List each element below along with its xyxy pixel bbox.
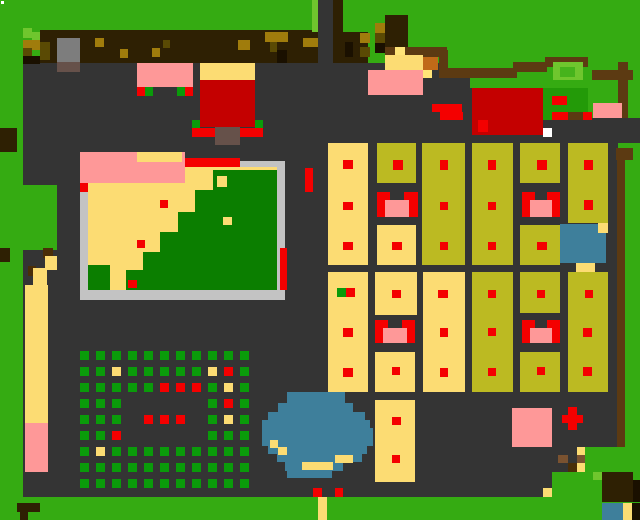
gate-top [383, 320, 388, 328]
crop-dot [176, 383, 185, 392]
crop-dot [240, 415, 249, 424]
crop-dot [192, 447, 201, 456]
crop-dot [240, 383, 249, 392]
door-marker [440, 328, 448, 337]
red-mark [432, 104, 462, 112]
gate-top [547, 192, 552, 200]
crop-dot [240, 399, 249, 408]
door-marker [537, 160, 547, 170]
crop-dot [160, 367, 169, 376]
crop-dot [128, 463, 137, 472]
crop-dot [96, 383, 105, 392]
door-marker [343, 328, 353, 337]
tree-top [385, 15, 408, 48]
bush-marker [145, 87, 153, 96]
cursor-pixel [1, 1, 4, 4]
crop-dot [224, 351, 233, 360]
crop-dot [224, 431, 233, 440]
gate-top [547, 320, 552, 328]
crop-dot [224, 399, 233, 408]
gate-pillar [522, 192, 530, 217]
tree-bottom-left [20, 510, 28, 520]
grass-tuft [23, 28, 32, 38]
dirt-path [568, 463, 577, 472]
crop-dot [96, 479, 105, 488]
park-field [178, 212, 195, 290]
crop-dot [112, 383, 121, 392]
door-marker [392, 290, 401, 298]
crop-dot [192, 479, 201, 488]
dirt-path [577, 455, 585, 463]
door-marker [393, 160, 403, 170]
door-marker [392, 242, 402, 250]
gate-top [404, 192, 409, 200]
red-mark [552, 96, 567, 105]
crop-dot [224, 367, 233, 376]
crop-dot [112, 351, 121, 360]
door-marker [440, 368, 448, 377]
grass-tuft [593, 472, 602, 480]
pond-big [268, 412, 365, 420]
park-field [88, 265, 110, 290]
crop-dot [208, 399, 217, 408]
crop-dot [144, 463, 153, 472]
crop-dot [144, 367, 153, 376]
fence-knot [238, 40, 250, 50]
pond-sand [576, 263, 595, 272]
sand-patch-top [385, 55, 423, 71]
gate-pillar [377, 192, 385, 217]
park-border-red [280, 248, 287, 290]
door-marker [488, 160, 496, 170]
crop-dot [208, 463, 217, 472]
crop-dot [96, 399, 105, 408]
crop-dot [144, 479, 153, 488]
crop-dot [240, 351, 249, 360]
fence-right [617, 160, 625, 447]
crop-dot [224, 383, 233, 392]
door-marker [343, 202, 353, 210]
grass-bottom-right [585, 447, 618, 472]
gate-pink [530, 328, 552, 343]
corner-dirt [23, 48, 32, 56]
crop-dot [160, 479, 169, 488]
corner-dirt [40, 42, 50, 60]
park-corner-red [80, 183, 88, 192]
door-marker [343, 242, 353, 250]
door-marker [392, 455, 400, 463]
crop-dot [80, 463, 89, 472]
door-marker [583, 328, 592, 337]
door-marker [137, 87, 145, 96]
crop-dot [160, 351, 169, 360]
door-marker [537, 290, 545, 298]
pond-big [262, 420, 370, 428]
park-field [143, 252, 160, 290]
crop-dot [112, 479, 121, 488]
tree-detail [360, 33, 370, 43]
park-border [80, 290, 285, 300]
crop-dot [80, 479, 89, 488]
crop-dot [192, 351, 201, 360]
door-marker [438, 290, 448, 298]
pink-patch [593, 103, 622, 118]
crop-dot [176, 351, 185, 360]
gate-pink [530, 200, 552, 217]
door-marker [584, 200, 593, 210]
pink-roof-small [368, 70, 423, 95]
crop-dot [208, 351, 217, 360]
crop-dot [112, 367, 121, 376]
sand-road [25, 300, 48, 423]
pond-sand [302, 462, 333, 470]
crop-dot [80, 399, 89, 408]
bush-marker [255, 120, 263, 128]
item-marker [128, 280, 137, 288]
crop-dot [112, 415, 121, 424]
crop-dot [80, 367, 89, 376]
crop-dot [80, 447, 89, 456]
red-mark [552, 112, 568, 120]
pond-big [278, 403, 353, 412]
sand-dot [543, 488, 552, 497]
tree-shadow [633, 480, 640, 502]
sand-patch [223, 217, 232, 225]
fence-knot [95, 38, 104, 47]
tree-left-edge [0, 128, 17, 152]
crop-dot [80, 383, 89, 392]
crop-dot [224, 447, 233, 456]
crop-dot [128, 479, 137, 488]
stone-base [57, 62, 80, 72]
grass-bulge-left [23, 185, 57, 250]
dirt-mark [568, 112, 583, 120]
crop-dot [176, 447, 185, 456]
door-marker [488, 368, 496, 376]
fence-knot [303, 38, 318, 47]
crop-dot [192, 463, 201, 472]
sand-path [577, 447, 585, 455]
crop-dot [96, 367, 105, 376]
gate-pink [385, 200, 409, 217]
gate-pillar [552, 192, 560, 217]
gate-pillar [552, 320, 560, 343]
crop-dot [144, 383, 153, 392]
crop-dot [96, 431, 105, 440]
crop-dot [160, 463, 169, 472]
crop-dot [112, 431, 121, 440]
gate-pillar [409, 192, 418, 217]
door-marker [488, 202, 496, 210]
crop-dot [240, 367, 249, 376]
crop-dot [208, 447, 217, 456]
fence-knot [345, 42, 353, 57]
tree-bottom-right [602, 472, 633, 502]
pond-sand [270, 440, 278, 448]
crop-dot [176, 463, 185, 472]
door-marker [584, 160, 593, 170]
fence-gate [616, 148, 633, 160]
crop-dot [144, 415, 153, 424]
door-marker [585, 290, 593, 298]
crop-dot [224, 479, 233, 488]
crate [423, 57, 438, 70]
fence-knot [265, 32, 288, 42]
park-roof-tan [137, 152, 182, 162]
stone-statue [57, 38, 80, 62]
park-field [213, 170, 277, 290]
pond-big [262, 428, 373, 446]
bush-inner [560, 67, 575, 77]
gate-top [530, 192, 535, 200]
pond-corner [602, 503, 623, 520]
fence-knot [120, 49, 128, 58]
crop-dot [96, 415, 105, 424]
door-marker [343, 368, 353, 377]
building-pink [512, 408, 552, 447]
crop-dot [112, 447, 121, 456]
tree-detail [375, 43, 385, 53]
crop-dot [160, 447, 169, 456]
pink-road-end [25, 423, 48, 472]
tree-left-edge [0, 248, 10, 262]
crop-dot [240, 463, 249, 472]
town-map [0, 0, 640, 520]
door-marker [537, 367, 545, 375]
fence-knot [270, 42, 277, 52]
door-marker [488, 242, 496, 250]
gate-pillar [407, 320, 415, 343]
crop-dot [128, 447, 137, 456]
crop-dot [224, 415, 233, 424]
door-marker [537, 242, 547, 250]
red-cross [562, 415, 583, 423]
crop-dot [160, 415, 169, 424]
door-marker [185, 87, 193, 96]
pond-sand [278, 447, 287, 455]
crop-dot [176, 367, 185, 376]
park-field [195, 190, 215, 290]
sand-patch [217, 176, 227, 187]
crop-dot [144, 447, 153, 456]
door-marker [583, 367, 592, 376]
gate-top [385, 192, 390, 200]
corner-dirt [23, 56, 40, 64]
crop-dot [160, 383, 169, 392]
door-marker [346, 288, 355, 297]
fence-bar [447, 68, 517, 78]
crop-dot [208, 367, 217, 376]
building-khaki [568, 143, 608, 223]
pond-big [287, 392, 345, 403]
fence-knot [277, 50, 287, 63]
crop-dot [240, 447, 249, 456]
path-top [318, 0, 334, 64]
white-sign [543, 128, 552, 137]
crop-dot [240, 479, 249, 488]
park-border [80, 183, 88, 293]
grass-tuft [32, 32, 40, 40]
door-marker [313, 488, 322, 497]
pond-big [287, 470, 332, 478]
crop-dot [208, 431, 217, 440]
crop-dot [80, 415, 89, 424]
fence-knot [163, 40, 170, 48]
bush-marker [177, 87, 185, 96]
fence-bar [513, 62, 547, 72]
crop-dot [208, 415, 217, 424]
gate-pink [383, 328, 407, 343]
gate-pillar [375, 320, 383, 343]
crop-dot [208, 383, 217, 392]
red-post [305, 168, 313, 192]
ground-blob-top [432, 78, 470, 95]
crop-dot [144, 351, 153, 360]
crop-dot [80, 351, 89, 360]
ground-right-edge [593, 118, 640, 143]
crop-dot [176, 479, 185, 488]
tree-shadow [632, 503, 640, 520]
crop-dot [112, 463, 121, 472]
pond-sand [623, 503, 632, 520]
gate-top [402, 320, 407, 328]
item-marker [137, 240, 145, 248]
tree-detail [360, 47, 370, 57]
pond-sand [335, 455, 353, 463]
gate-top [530, 320, 535, 328]
tree-detail [375, 23, 385, 33]
path-grass-edge [312, 0, 318, 32]
crop-dot [96, 447, 105, 456]
red-mark [440, 112, 463, 120]
park-field [160, 232, 178, 290]
crop-dot [128, 367, 137, 376]
crop-dot [192, 367, 201, 376]
bush-marker [192, 120, 200, 128]
door-marker [392, 417, 401, 425]
crop-dot [112, 399, 121, 408]
door-marker [488, 290, 496, 298]
crop-dot [240, 431, 249, 440]
building-tan [375, 400, 415, 482]
bush-marker [337, 288, 346, 297]
fence-knot [152, 48, 160, 57]
crate-light [423, 70, 432, 78]
crop-dot [128, 383, 137, 392]
crop-dot [80, 431, 89, 440]
door-marker [343, 160, 353, 169]
item-marker [160, 200, 168, 208]
dirt-path [558, 455, 568, 463]
door-marker [335, 488, 343, 497]
building-roof-pink [137, 63, 193, 87]
door-marker [488, 328, 496, 336]
door-marker [440, 160, 448, 170]
building-porch [215, 127, 240, 145]
crop-dot [224, 463, 233, 472]
door-marker [440, 202, 448, 210]
crop-dot [192, 383, 201, 392]
sand-exit-path [318, 497, 327, 520]
door-marker [440, 242, 448, 250]
door-marker [478, 120, 488, 132]
crop-dot [128, 351, 137, 360]
tree-detail [375, 33, 385, 43]
gate-pillar [522, 320, 530, 343]
building-awning [200, 63, 255, 80]
red-mark [583, 112, 592, 120]
crop-dot [176, 415, 185, 424]
crop-dot [96, 351, 105, 360]
sand-path [577, 463, 585, 472]
pond-sand [598, 223, 608, 233]
crop-dot [96, 463, 105, 472]
corner-dirt [32, 40, 40, 50]
door-marker [392, 367, 400, 375]
crop-dot [208, 479, 217, 488]
building-roof-red [200, 80, 255, 127]
